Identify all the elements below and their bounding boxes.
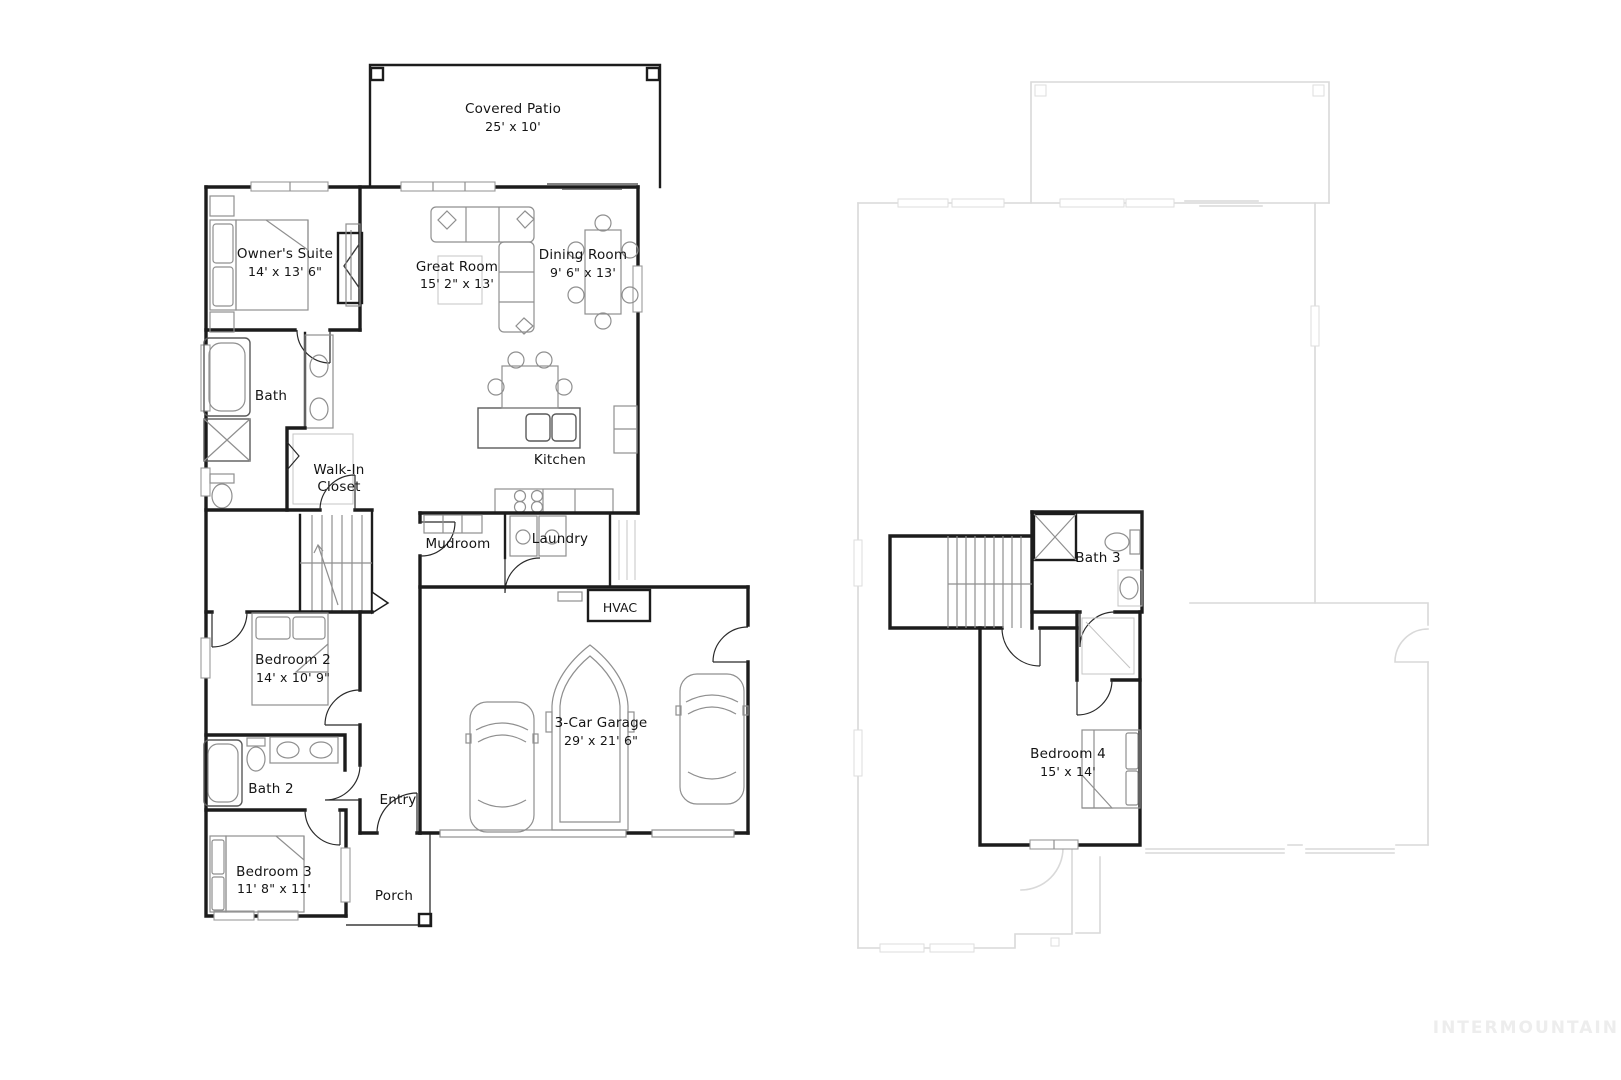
sink-icon: [310, 355, 328, 377]
under-stair-door: [372, 592, 388, 613]
room-dims-dining-room: 9' 6" x 13': [550, 265, 616, 280]
bedroom-4: Bedroom 4 15' x 14': [980, 628, 1140, 849]
porch: Porch: [346, 833, 431, 926]
dining-room: Dining Room 9' 6" x 13': [539, 215, 638, 329]
second-floor-plan: Bath 3 Bedroom 4 15' x 14': [854, 82, 1428, 952]
room-label-laundry: Laundry: [532, 531, 588, 547]
bath-2: Bath 2: [204, 735, 360, 806]
room-label-walk-in: Walk-In: [313, 462, 364, 478]
watermark-text: INTERMOUNTAIN: [1433, 1018, 1619, 1038]
garage: HVAC 3-Car Garage 29' x 21' 6": [420, 587, 748, 837]
patio-post-icon: [647, 68, 659, 80]
bedroom-3: Bedroom 3 11' 8" x 11': [206, 810, 350, 916]
kitchen-table-icon: [488, 352, 572, 408]
owners-suite: Owner's Suite 14' x 13' 6": [206, 187, 362, 363]
car-icon: [676, 674, 748, 804]
room-label-porch: Porch: [375, 888, 413, 904]
dresser-icon: [346, 224, 360, 306]
sink-icon: [1118, 570, 1142, 606]
room-dims-garage: 29' x 21' 6": [564, 733, 638, 748]
room-dims-bedroom-3: 11' 8" x 11': [237, 881, 311, 896]
garage-door-icon: [440, 830, 734, 837]
room-label-owners-suite: Owner's Suite: [237, 246, 333, 262]
pantry-shelves: [619, 520, 635, 580]
first-floor-plan: Owner's Suite 14' x 13' 6" Great Room 15…: [201, 65, 748, 926]
room-dims-covered-patio: 25' x 10': [485, 119, 541, 134]
kitchen: Kitchen: [478, 352, 637, 513]
room-label-bedroom-4: Bedroom 4: [1030, 746, 1106, 762]
room-label-bath-2: Bath 2: [248, 781, 293, 797]
vanity-icon: [270, 737, 338, 763]
great-room: Great Room 15' 2" x 13': [416, 207, 534, 334]
staircase: [300, 510, 388, 613]
patio-post-icon: [371, 68, 383, 80]
tub-icon: [204, 740, 242, 806]
room-label-bedroom-3: Bedroom 3: [236, 864, 312, 880]
walk-in-closet: Walk-In Closet: [287, 428, 365, 510]
room-label-bath: Bath: [255, 388, 287, 404]
mudroom-bench-icon: [424, 515, 482, 533]
fridge-icon: [614, 406, 637, 453]
tub-icon: [204, 338, 250, 416]
room-label-mudroom: Mudroom: [425, 536, 490, 552]
room-label-dining-room: Dining Room: [539, 247, 628, 263]
room-label-entry: Entry: [380, 792, 417, 808]
room-label-kitchen: Kitchen: [534, 452, 586, 468]
shower-icon: [1034, 514, 1076, 560]
room-label-garage: 3-Car Garage: [555, 715, 648, 731]
room-label-covered-patio: Covered Patio: [465, 101, 561, 117]
shower-icon: [204, 419, 250, 461]
kitchen-island-icon: [478, 408, 580, 448]
floor-plan-drawing: Owner's Suite 14' x 13' 6" Great Room 15…: [0, 0, 1621, 1080]
room-dims-owners-suite: 14' x 13' 6": [248, 264, 322, 279]
room-label-hvac: HVAC: [603, 600, 637, 615]
kitchen-counter-icon: [495, 489, 613, 513]
vanity-icon: [305, 335, 333, 428]
room-label-bedroom-2: Bedroom 2: [255, 652, 331, 668]
room-dims-bedroom-4: 15' x 14': [1040, 764, 1096, 779]
floor-plan-page: Owner's Suite 14' x 13' 6" Great Room 15…: [0, 0, 1621, 1080]
toilet-icon: [247, 738, 265, 771]
staircase-second-floor: [890, 512, 1032, 628]
porch-post-icon: [419, 914, 431, 926]
sink-icon: [310, 398, 328, 420]
hvac-closet: HVAC: [558, 590, 650, 621]
room-dims-bedroom-2: 14' x 10' 9": [256, 670, 330, 685]
room-label-great-room: Great Room: [416, 259, 498, 275]
room-label-bath-3: Bath 3: [1075, 550, 1120, 566]
toilet-icon: [210, 474, 234, 508]
entry: Entry: [360, 792, 420, 833]
car-icon: [466, 702, 538, 832]
mudroom-laundry: Mudroom Laundry: [420, 513, 638, 833]
room-dims-great-room: 15' 2" x 13': [420, 276, 494, 291]
